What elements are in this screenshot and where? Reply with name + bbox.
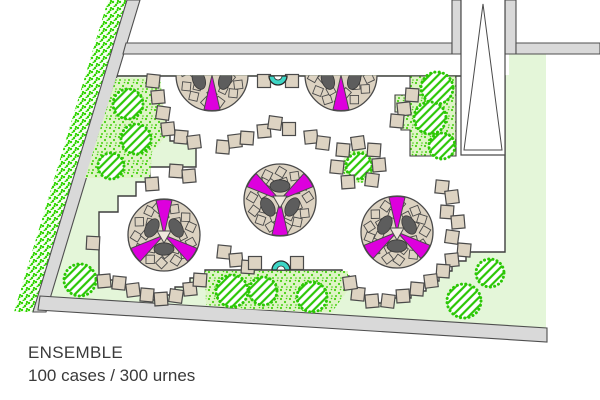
stepping-stone: [187, 135, 201, 149]
site-plan-canvas: [0, 0, 600, 400]
urn-case: [322, 60, 331, 69]
stepping-stone: [193, 273, 207, 287]
stepping-stone: [365, 173, 379, 187]
wall-top-wall-right: [516, 43, 600, 54]
columbarium-rosette: [361, 196, 433, 268]
urn-case: [361, 84, 370, 93]
stepping-stone: [154, 292, 168, 306]
plan-subtitle: 100 cases / 300 urnes: [28, 366, 195, 386]
stepping-stone: [291, 257, 304, 270]
stepping-stone: [343, 276, 358, 291]
stepping-stone: [97, 274, 111, 288]
tree-symbol: [297, 282, 327, 312]
stepping-stone: [424, 274, 438, 288]
stepping-stone: [405, 88, 419, 102]
stepping-stone: [390, 114, 404, 128]
stepping-stone: [146, 74, 160, 88]
stepping-stone: [410, 282, 424, 296]
urn-case: [234, 63, 244, 73]
urn-case: [355, 67, 364, 76]
urn-case: [196, 56, 206, 66]
plan-caption: ENSEMBLE 100 cases / 300 urnes: [28, 343, 195, 386]
planting-blob: [270, 180, 290, 192]
tree-symbol: [98, 153, 124, 179]
urn-case: [181, 213, 190, 222]
urn-case: [222, 59, 232, 69]
stepping-stone: [140, 288, 154, 302]
wall-stub-right: [505, 0, 516, 54]
tree-symbol: [476, 259, 504, 287]
stepping-stone: [445, 230, 460, 245]
stepping-stone: [365, 294, 379, 308]
stepping-stone: [397, 102, 411, 116]
urn-case: [300, 209, 309, 218]
stepping-stone: [229, 253, 243, 267]
site-plan: ENSEMBLE 100 cases / 300 urnes: [0, 0, 600, 400]
urn-case: [350, 95, 358, 103]
tree-symbol: [113, 89, 143, 119]
stepping-stone: [330, 160, 344, 174]
wall-top-wall-left: [123, 43, 452, 54]
urn-case: [417, 214, 428, 225]
stepping-stone: [457, 243, 471, 257]
stepping-stone: [316, 136, 330, 150]
stepping-stone: [86, 236, 100, 250]
stepping-stone: [381, 294, 395, 308]
urn-case: [182, 82, 191, 91]
urn-case: [309, 59, 321, 71]
urn-case: [347, 55, 357, 65]
urn-case: [292, 217, 302, 227]
stepping-stone: [151, 90, 165, 104]
stepping-stone: [174, 130, 188, 144]
tree-symbol: [414, 102, 446, 134]
tree-symbol: [216, 275, 248, 307]
stepping-stone: [249, 257, 262, 270]
stepping-stone: [283, 123, 296, 136]
urn-case: [322, 94, 332, 104]
stepping-stone: [367, 143, 381, 157]
tree-symbol: [64, 264, 96, 296]
urn-case: [184, 53, 195, 64]
urn-case: [189, 91, 199, 101]
columbarium-rosette: [128, 199, 200, 271]
tree-symbol: [121, 124, 151, 154]
planting-blob: [387, 240, 407, 252]
stepping-stone: [145, 177, 159, 191]
urn-case: [229, 89, 238, 98]
plan-title: ENSEMBLE: [28, 343, 195, 363]
stepping-stone: [445, 190, 459, 204]
tree-symbol: [429, 133, 455, 159]
stepping-stone: [216, 140, 230, 154]
stepping-stone: [182, 169, 196, 183]
stepping-stone: [169, 164, 183, 178]
tree-symbol: [421, 72, 453, 104]
stepping-stone: [161, 122, 175, 136]
urn-case: [179, 66, 190, 77]
stepping-stone: [112, 276, 126, 290]
wall-stub-left: [452, 0, 461, 54]
stepping-stone: [341, 175, 355, 189]
urn-case: [371, 210, 380, 219]
tree-symbol: [249, 277, 277, 305]
urn-case: [362, 61, 373, 72]
stepping-stone: [240, 131, 254, 145]
urn-case: [234, 80, 243, 89]
stepping-stone: [351, 136, 366, 151]
columbarium-rosette: [244, 164, 316, 236]
stepping-stone: [372, 158, 386, 172]
planting-blob: [154, 243, 174, 255]
tree-symbol: [447, 284, 481, 318]
stepping-stone: [169, 289, 184, 304]
stepping-stone: [451, 215, 465, 229]
stepping-stone: [268, 116, 283, 131]
stepping-stone: [126, 283, 140, 297]
urn-case: [135, 217, 144, 226]
stepping-stone: [336, 143, 350, 157]
stepping-stone: [436, 264, 450, 278]
urn-case: [146, 255, 154, 263]
stepping-stone: [396, 289, 410, 303]
stepping-stone: [156, 106, 171, 121]
